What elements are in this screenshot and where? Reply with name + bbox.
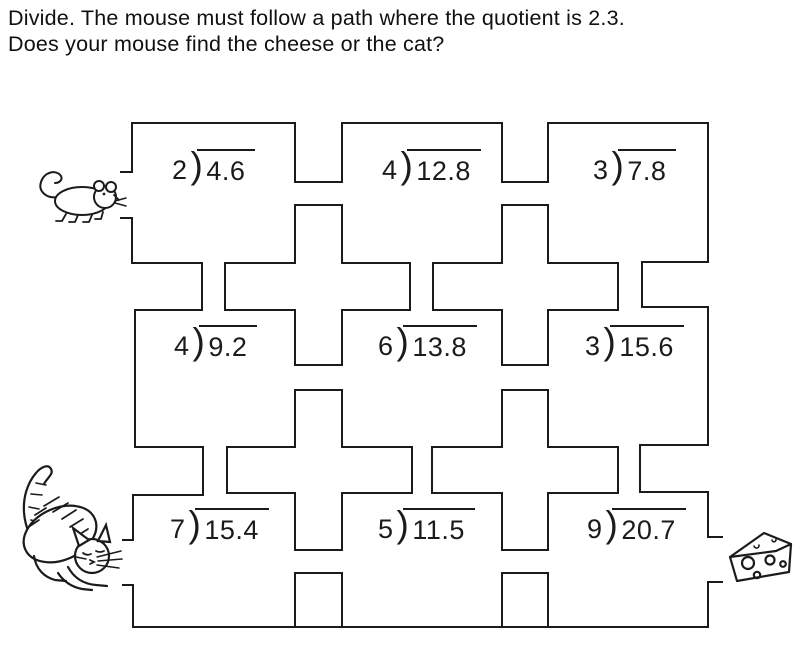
divisor: 7 — [170, 516, 186, 543]
division-problem: 4)12.8 — [382, 148, 481, 185]
division-problem: 5)11.5 — [378, 507, 475, 544]
division-bracket: ) — [606, 506, 619, 543]
dividend: 15.6 — [610, 325, 684, 361]
division-bracket: ) — [397, 506, 410, 543]
cheese-icon — [730, 533, 791, 581]
floor-pillar — [502, 573, 548, 627]
division-bracket: ) — [612, 147, 625, 184]
mouse-icon — [40, 172, 126, 222]
division-bracket: ) — [397, 323, 410, 360]
divisor: 4 — [382, 157, 398, 184]
maze-outer-left-wall — [120, 218, 203, 540]
dividend: 9.2 — [199, 325, 257, 361]
dividend: 15.4 — [195, 508, 269, 544]
dividend: 4.6 — [197, 149, 255, 185]
division-bracket: ) — [401, 147, 414, 184]
floor-pillar — [295, 573, 342, 627]
division-problem: 4)9.2 — [174, 324, 257, 361]
worksheet-page: Divide. The mouse must follow a path whe… — [0, 0, 800, 647]
dividend: 11.5 — [403, 508, 475, 544]
division-problem: 2)4.6 — [172, 148, 255, 185]
dividend: 20.7 — [612, 508, 686, 544]
divisor: 6 — [378, 333, 394, 360]
division-bracket: ) — [189, 506, 202, 543]
division-bracket: ) — [604, 323, 617, 360]
divisor: 9 — [587, 516, 603, 543]
division-problem: 3)7.8 — [593, 148, 676, 185]
dividend: 12.8 — [407, 149, 481, 185]
divisor: 3 — [585, 333, 601, 360]
divisor: 4 — [174, 333, 190, 360]
division-bracket: ) — [191, 147, 204, 184]
division-problem: 9)20.7 — [587, 507, 686, 544]
maze-walls — [120, 123, 723, 627]
division-problem: 7)15.4 — [170, 507, 269, 544]
division-bracket: ) — [193, 323, 206, 360]
dividend: 13.8 — [403, 325, 477, 361]
divisor: 2 — [172, 157, 188, 184]
divisor: 5 — [378, 516, 394, 543]
cat-icon — [15, 466, 122, 590]
dividend: 7.8 — [618, 149, 676, 185]
divisor: 3 — [593, 157, 609, 184]
division-problem: 6)13.8 — [378, 324, 477, 361]
maze-outer-bottom-wall — [122, 582, 723, 627]
division-problem: 3)15.6 — [585, 324, 684, 361]
